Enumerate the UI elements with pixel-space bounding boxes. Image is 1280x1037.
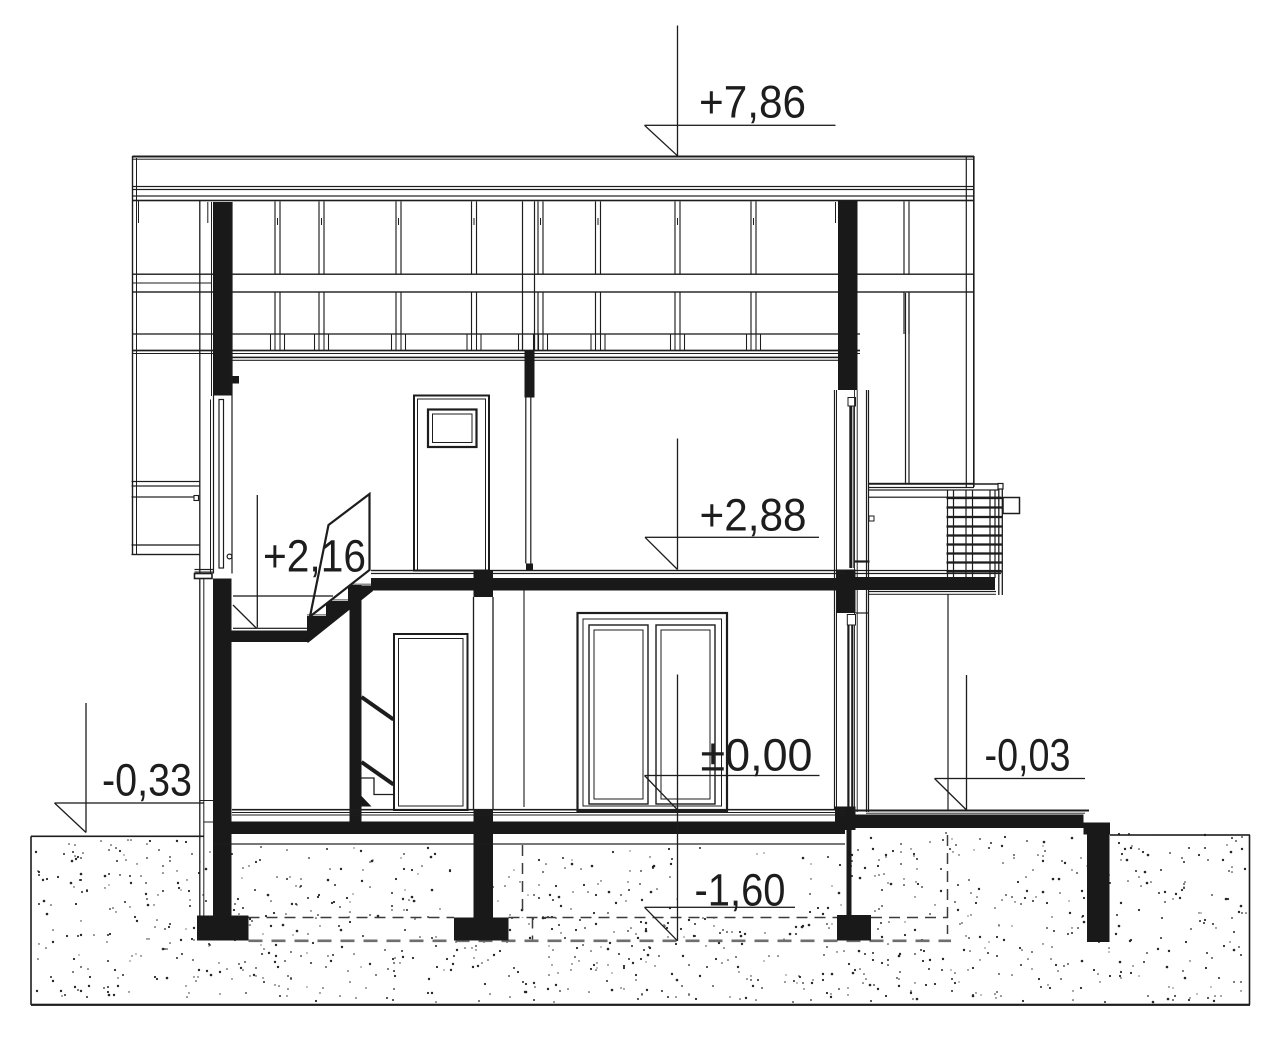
svg-text:+2,88: +2,88 bbox=[700, 490, 807, 541]
svg-text:±0,00: ±0,00 bbox=[701, 729, 813, 780]
svg-text:+2,16: +2,16 bbox=[263, 530, 366, 581]
svg-text:+7,86: +7,86 bbox=[699, 77, 806, 128]
svg-text:-0,03: -0,03 bbox=[985, 729, 1071, 780]
svg-text:-0,33: -0,33 bbox=[102, 755, 192, 806]
